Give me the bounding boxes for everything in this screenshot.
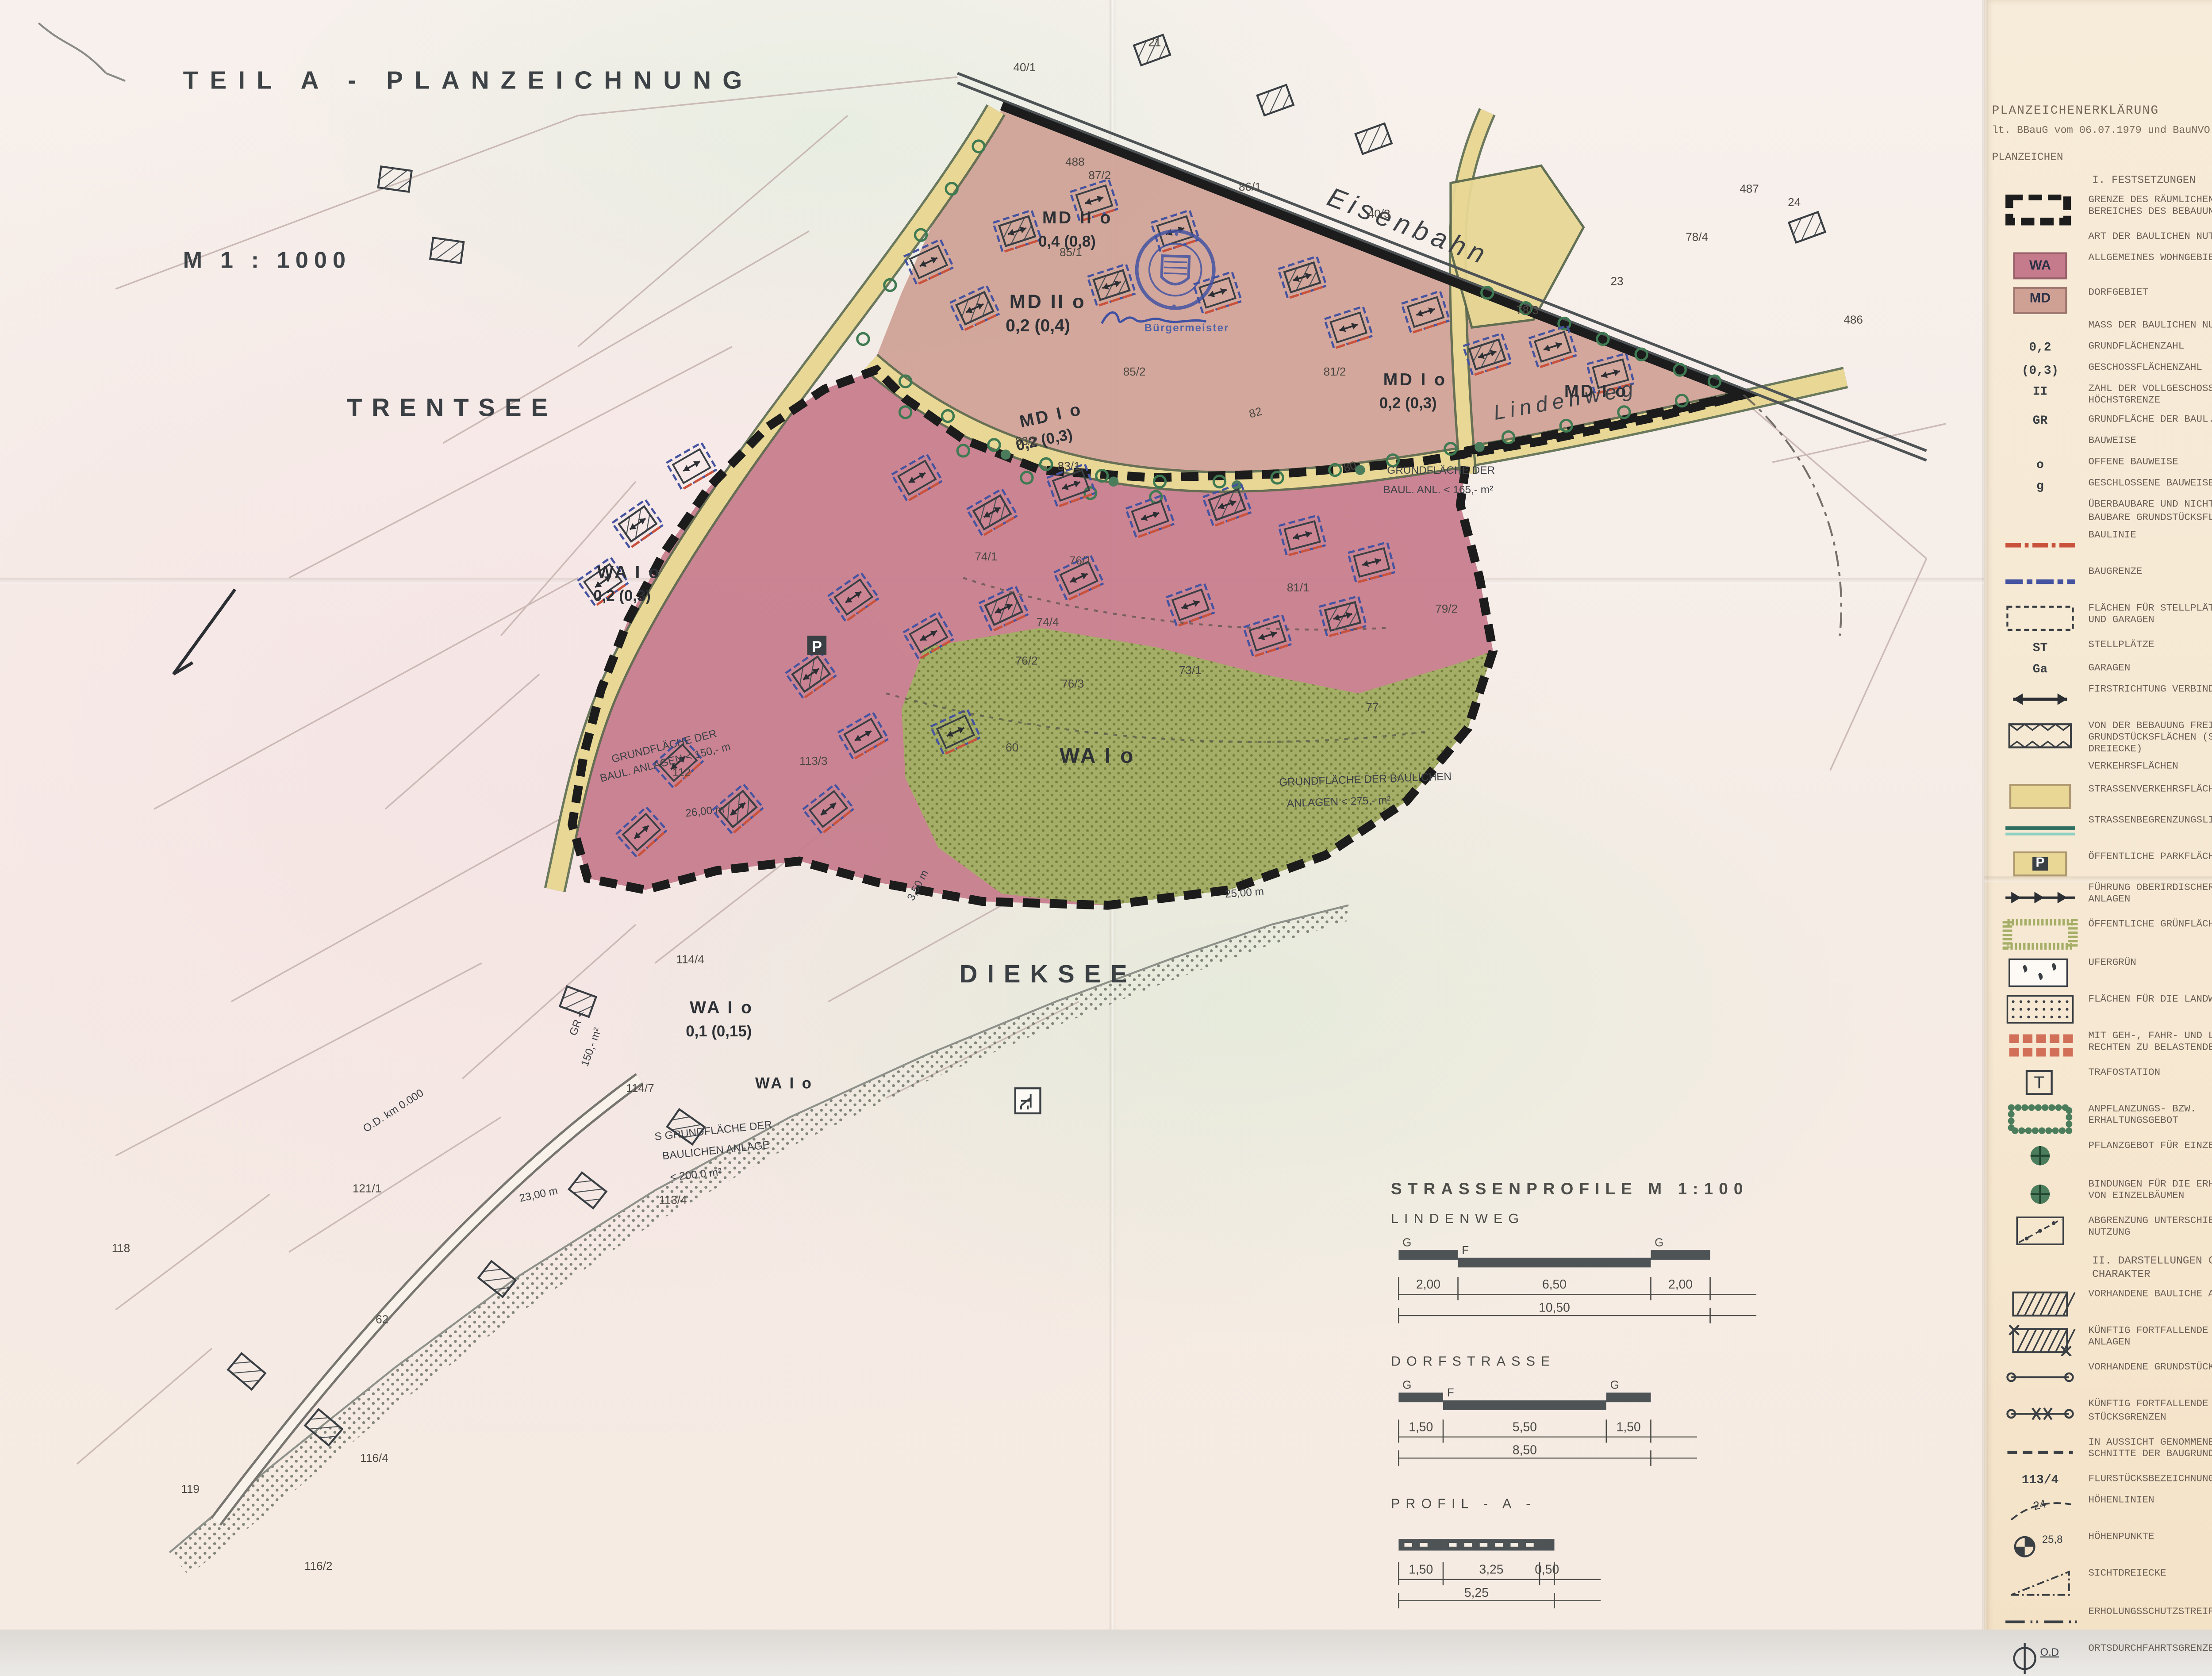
parcel-number: 79/2 — [1435, 602, 1458, 615]
svg-text:5,50: 5,50 — [1513, 1419, 1537, 1434]
legend-label: ÜBERBAUBARE UND NICHT ÜBER- BAUBARE GRUN… — [2088, 500, 2212, 523]
teil-a-title: TEIL A - PLANZEICHNUNG — [183, 65, 754, 94]
legend-label: GRUNDFLÄCHENZAHL — [2088, 341, 2212, 353]
einzelbaum-icon — [2001, 1178, 2078, 1209]
legend-row: ERHOLUNGSSCHUTZSTREIFENGEM. § 17 a LNG — [1992, 1606, 2212, 1637]
svg-text:2,00: 2,00 — [1668, 1277, 1693, 1291]
legend-row: VON DER BEBAUUNG FREIZUHALTENDE GRUNDSTÜ… — [1992, 720, 2212, 756]
map-annotation: O.D. km 0.000 — [361, 1087, 426, 1135]
parcel-number: 488 — [1065, 155, 1085, 168]
legend-row: STRASSENBEGRENZUNGSLINIE — [1992, 814, 2212, 845]
legend-label: DORFGEBIET — [2088, 286, 2212, 298]
legend-row: PÖFFENTLICHE PARKFLÄCHEN — [1992, 851, 2212, 877]
zone-label: WA I o — [690, 998, 753, 1017]
legend-row: BAUGRENZE§ 23 BauNVO — [1992, 566, 2212, 597]
map-annotation: 23,00 m — [518, 1185, 559, 1204]
legend-label: BAUWEISE — [2088, 435, 2212, 447]
parcel-number: 114/4 — [676, 952, 704, 966]
parking-icon: P — [2013, 851, 2067, 877]
legend-label: GRUNDFLÄCHE DER BAUL. ANLAGE — [2088, 414, 2212, 426]
legend-rows: I. FESTSETZUNGENGRENZE DES RÄUMLICHEN GE… — [1992, 173, 2212, 1673]
baulinie-icon — [2001, 529, 2078, 560]
map-annotation: GR < — [567, 1009, 587, 1037]
legend-row: SICHTDREIECKE — [1992, 1569, 2212, 1599]
parcel-number: 40/3 — [1368, 207, 1390, 220]
map-annotation: 150,- m² — [579, 1026, 603, 1068]
parcel-number: 118 — [112, 1241, 131, 1254]
legend-label: STRASSENBEGRENZUNGSLINIE — [2088, 814, 2212, 826]
building — [1356, 123, 1392, 154]
legend-label: SICHTDREIECKE — [2088, 1569, 2212, 1580]
parcel-number: 78/4 — [1686, 230, 1708, 243]
svg-text:G: G — [1402, 1235, 1411, 1249]
legend-label: GESCHLOSSENE BAUWEISE — [2088, 478, 2212, 490]
legend-row: VORHANDENE GRUNDSTÜCKSGRENZEN — [1992, 1362, 2212, 1393]
geh-fahr-leitungsrechte-icon — [2001, 1030, 2078, 1061]
parcel-number: 76/3 — [1061, 677, 1084, 690]
parcel-number: 40/1 — [1014, 61, 1036, 74]
map-annotation: 25,00 m — [1225, 886, 1264, 900]
versorgung-icon — [2001, 882, 2078, 913]
svg-text:1,50: 1,50 — [1409, 1562, 1433, 1576]
legend-label: UFERGRÜN — [2088, 956, 2212, 968]
profiles-body: LINDENWEG GFG2,00 6,50 2,00 10,50DORFSTR… — [1391, 1213, 1776, 1626]
svg-text:F: F — [1462, 1243, 1469, 1257]
legend-label: KÜNFTIG FORTFALLENDE GRUND- STÜCKSGRENZE… — [2088, 1399, 2212, 1423]
svg-text:G: G — [1402, 1378, 1411, 1392]
legend-label: HÖHENLINIEN — [2088, 1495, 2212, 1507]
legend-symbol-text: II — [2033, 385, 2047, 398]
baugrenze-icon — [2001, 566, 2078, 597]
legend-symbol-text: GR — [2033, 414, 2047, 428]
legend-row: GaGARAGEN — [1992, 662, 2212, 677]
parcel-number: 76/1 — [1069, 554, 1092, 567]
svg-text:2,00: 2,00 — [1416, 1277, 1440, 1291]
legend-symbol-text: o — [2036, 457, 2044, 471]
map-annotation: GRUNDFLÄCHE DER — [1387, 464, 1495, 476]
legend-row: gGESCHLOSSENE BAUWEISE§ 22 BauNVO — [1992, 478, 2212, 494]
legend-row: TTRAFOSTATION — [1992, 1067, 2212, 1098]
parcel-number: 487 — [1740, 182, 1759, 195]
parcel-number: 60 — [1006, 740, 1018, 754]
street-profiles: STRASSENPROFILE M 1:100 LINDENWEG GFG2,0… — [1391, 1179, 1776, 1626]
legend-label: FLÄCHEN FÜR DIE LANDWIRTSCHAFT — [2088, 993, 2212, 1005]
street-profile: PROFIL - A - 1,50 3,25 0,50 5,25 — [1391, 1499, 1776, 1626]
legend-row: MIT GEH-, FAHR- UND LEITUNGS- RECHTEN ZU… — [1992, 1030, 2212, 1061]
profile-name: LINDENWEG — [1391, 1213, 1776, 1227]
north-mark — [173, 590, 235, 675]
legend-row: FIRSTRICHTUNG VERBINDLICH — [1992, 683, 2212, 714]
legend-row: KÜNFTIG FORTFALLENDE BAULICHE ANLAGEN — [1992, 1325, 2212, 1356]
legend-symbol-text: 113/4 — [2022, 1474, 2059, 1487]
ufergruen-band — [169, 905, 1348, 1576]
map-annotation: BAUL. ANL. < 165,- m² — [1383, 484, 1494, 496]
zone-value: 0,2 (0,3) — [593, 587, 651, 605]
firstrichtung-icon — [2001, 683, 2078, 714]
legend-label: VORHANDENE BAULICHE ANLAGEN — [2088, 1289, 2212, 1300]
building — [378, 166, 412, 192]
legend-row: WAALLGEMEINES WOHNGEBIET§ 4 BauNVO — [1992, 253, 2212, 280]
legend-label: MIT GEH-, FAHR- UND LEITUNGS- RECHTEN ZU… — [2088, 1030, 2212, 1054]
stellplatz-area-icon — [2001, 603, 2078, 634]
parcel-number: 76/2 — [1015, 654, 1038, 667]
parcel-number: 85/1 — [1060, 245, 1082, 259]
legend-label: BAULINIE — [2088, 529, 2212, 541]
legend-row: O.DORTSDURCHFAHRTSGRENZE BEI km 0,000 — [1992, 1642, 2212, 1673]
legend-row: FLÄCHEN FÜR DIE LANDWIRTSCHAFT§ 9 Abs. 1… — [1992, 993, 2212, 1024]
legend-label: HÖHENPUNKTE — [2088, 1532, 2212, 1544]
svg-text:8,50: 8,50 — [1513, 1443, 1537, 1457]
zone-value: 0,2 (0,4) — [1006, 316, 1070, 335]
parcel-number: 121/1 — [353, 1181, 381, 1195]
profile-drawing: GFG1,50 5,50 1,50 8,50 — [1391, 1373, 1776, 1473]
legend-section-header: I. FESTSETZUNGEN — [2092, 173, 2212, 187]
legend-symbol-text: (0,3) — [2022, 363, 2059, 376]
parcel-number: 77 — [1366, 700, 1379, 713]
parcel-number: 86/1 — [1239, 180, 1261, 193]
legend-row: ART DER BAULICHEN NUTZUNG§ 9 Abs. 1 Nr. … — [1992, 231, 2212, 247]
legend-col-planzeichen: PLANZEICHEN — [1992, 150, 2063, 164]
legend-label: ALLGEMEINES WOHNGEBIET — [2088, 253, 2212, 265]
parcel-number: 24 — [1788, 196, 1801, 209]
legend-label: ERHOLUNGSSCHUTZSTREIFEN — [2088, 1606, 2212, 1618]
svg-text:O.D: O.D — [2040, 1646, 2059, 1658]
building — [1789, 212, 1825, 242]
zone-value: 0,1 (0,15) — [686, 1023, 752, 1040]
legend-label: GRENZE DES RÄUMLICHEN GELTUNGS- BEREICHE… — [2088, 195, 2212, 218]
plan-boundary-icon — [2001, 195, 2078, 226]
legend-label: VERKEHRSFLÄCHEN — [2088, 762, 2212, 774]
legend-label: KÜNFTIG FORTFALLENDE BAULICHE ANLAGEN — [2088, 1325, 2212, 1349]
svg-text:6,50: 6,50 — [1542, 1277, 1567, 1291]
legend-row: STSTELLPLÄTZE — [1992, 640, 2212, 656]
legend-row: BINDUNGEN FÜR DIE ERHALTUNG VON EINZELBÄ… — [1992, 1178, 2212, 1209]
legend-row: STRASSENVERKEHRSFLÄCHEN — [1992, 783, 2212, 809]
parcel-number: 74/1 — [975, 550, 997, 563]
building — [612, 500, 663, 548]
legend-label: VORHANDENE GRUNDSTÜCKSGRENZEN — [2088, 1362, 2212, 1374]
legend-label: FLURSTÜCKSBEZEICHNUNGEN — [2088, 1473, 2212, 1485]
abgrenzung-icon — [2001, 1215, 2078, 1246]
parcel-number: 83/2 — [1015, 434, 1038, 448]
legend-panel: PLANZEICHENERKLÄRUNG lt. BBauG vom 06.07… — [1992, 104, 2212, 1676]
ortsdurchfahrt-icon: O.D — [2001, 1642, 2078, 1673]
parcel-number: 73/1 — [1179, 663, 1202, 677]
svg-text:0,50: 0,50 — [1535, 1562, 1559, 1576]
hoehenpunkt-icon: 25,8 — [2001, 1532, 2078, 1563]
zone-label: MD I o — [1564, 382, 1628, 401]
hoehenlinie-icon: 24 — [2001, 1495, 2078, 1526]
svg-text:24: 24 — [2032, 1497, 2047, 1513]
legend-row: 0,2GRUNDFLÄCHENZAHL§§ 16 + 17 BauNVO — [1992, 341, 2212, 356]
legend-row: ÖFFENTLICHE GRÜNFLÄCHEN§ 9 Abs. 1 Nr. 15… — [1992, 920, 2212, 951]
legend-label: ÖFFENTLICHE PARKFLÄCHEN — [2088, 851, 2212, 863]
profile-drawing: 1,50 3,25 0,50 5,25 — [1391, 1516, 1776, 1616]
zone-label: MD II o — [1010, 291, 1086, 313]
legend-row: VORHANDENE BAULICHE ANLAGEN — [1992, 1289, 2212, 1319]
legend-row: MASS DER BAULICHEN NUTZUNG§ 9 Abs. 1 Nr.… — [1992, 319, 2212, 335]
road-area-icon — [2009, 783, 2071, 809]
parcel-number: 114/7 — [626, 1082, 654, 1095]
sichtflaeche-icon — [2001, 720, 2078, 751]
legend-label: ART DER BAULICHEN NUTZUNG — [2088, 231, 2212, 243]
svg-text:G: G — [1655, 1235, 1663, 1249]
legend-row: IIZAHL DER VOLLGESCHOSSE ALS HÖCHSTGRENZ… — [1992, 384, 2212, 407]
fortfallende-anlage-icon — [2001, 1325, 2078, 1356]
sichtdreieck-icon — [2001, 1569, 2078, 1599]
building — [1257, 85, 1294, 115]
parcel-number: 78/3 — [1516, 303, 1539, 317]
legend-row: VERKEHRSFLÄCHEN§ 9 Abs. 1 Nr. 11 BBauG — [1992, 762, 2212, 777]
legend-label: BINDUNGEN FÜR DIE ERHALTUNG VON EINZELBÄ… — [2088, 1178, 2212, 1202]
legend-row: ABGRENZUNG UNTERSCHIEDLICHER NUTZUNG§ 16… — [1992, 1215, 2212, 1246]
profile-drawing: GFG2,00 6,50 2,00 10,50 — [1391, 1231, 1776, 1331]
legend-row: ANPFLANZUNGS- BZW. ERHALTUNGSGEBOT§ 9 Ab… — [1992, 1104, 2212, 1135]
legend-label: FLÄCHEN FÜR STELLPLÄTZE UND GARAGEN — [2088, 603, 2212, 627]
legend-symbol-text: Ga — [2033, 663, 2047, 676]
landwirtschaft-icon — [2001, 993, 2078, 1024]
parcel-number: 113/3 — [799, 754, 827, 767]
legend-row: MDDORFGEBIET§ 5 BauNVO — [1992, 286, 2212, 313]
legend-row: GRENZE DES RÄUMLICHEN GELTUNGS- BEREICHE… — [1992, 195, 2212, 226]
lake-label: DIEKSEE — [960, 960, 1137, 988]
legend-row: oOFFENE BAUWEISE§ 22 BauNVO — [1992, 456, 2212, 472]
md-zone-icon: MD — [2013, 286, 2067, 313]
svg-text:3,25: 3,25 — [1479, 1562, 1503, 1576]
legend-label: GESCHOSSFLÄCHENZAHL — [2088, 362, 2212, 374]
zone-value: 0,2 (0,3) — [1379, 395, 1437, 412]
parcel-number: 119 — [181, 1482, 200, 1496]
fortfallende-grenze-icon — [2001, 1399, 2078, 1430]
parcel-number: 116/4 — [360, 1451, 388, 1465]
legend-row: (0,3)GESCHOSSFLÄCHENZAHL — [1992, 362, 2212, 378]
legend-row: KÜNFTIG FORTFALLENDE GRUND- STÜCKSGRENZE… — [1992, 1399, 2212, 1430]
legend-label: IN AUSSICHT GENOMMENE ZU- SCHNITTE DER B… — [2088, 1436, 2212, 1460]
legend-row: FLÄCHEN FÜR STELLPLÄTZE UND GARAGEN§ 9 A… — [1992, 603, 2212, 634]
map-scale: M 1 : 1000 — [183, 246, 351, 273]
parcel-number: 85/2 — [1123, 365, 1146, 378]
zone-label: WA I o — [755, 1074, 813, 1092]
legend-row: IN AUSSICHT GENOMMENE ZU- SCHNITTE DER B… — [1992, 1436, 2212, 1467]
wa-zone-icon: WA — [2013, 253, 2067, 280]
legend-section-header: II. DARSTELLUNGEN OHNE NORM- CHARAKTER — [2092, 1254, 2212, 1281]
legend-label: FIRSTRICHTUNG VERBINDLICH — [2088, 683, 2212, 695]
street-profile: LINDENWEG GFG2,00 6,50 2,00 10,50 — [1391, 1213, 1776, 1340]
legend-label: ÖFFENTLICHE GRÜNFLÄCHEN — [2088, 920, 2212, 932]
building — [228, 1354, 265, 1389]
parcel-number: 23 — [1610, 274, 1623, 288]
legend-row: ÜBERBAUBARE UND NICHT ÜBER- BAUBARE GRUN… — [1992, 500, 2212, 523]
legend-label: VON DER BEBAUUNG FREIZUHALTENDE GRUNDSTÜ… — [2088, 720, 2212, 756]
buergermeister-stamp-label: Bürgermeister — [1144, 324, 1229, 335]
lake-label: TRENTSEE — [347, 394, 557, 422]
svg-text:G: G — [1610, 1378, 1619, 1392]
grundstuecksgrenze-icon — [2001, 1362, 2078, 1393]
parcel-number: 486 — [1843, 313, 1863, 326]
parcel-number: 112 — [672, 766, 691, 779]
legend-row: 113/4FLURSTÜCKSBEZEICHNUNGEN — [1992, 1473, 2212, 1488]
parcel-number: 83/1 — [1058, 460, 1080, 473]
street-profile: DORFSTRASSE GFG1,50 5,50 1,50 8,50 — [1391, 1356, 1776, 1483]
gruenflaeche-icon — [2001, 920, 2078, 951]
svg-text:1,50: 1,50 — [1409, 1419, 1433, 1434]
ruheplatz-symbol — [1015, 1088, 1041, 1113]
parcel-number: 62 — [376, 1313, 388, 1326]
legend-label: PFLANZGEBOT FÜR EINZELBÄUME — [2088, 1141, 2212, 1153]
legend-row: 25,8HÖHENPUNKTE — [1992, 1532, 2212, 1563]
zone-label: MD I o — [1383, 370, 1447, 389]
parcel-number: 116/2 — [304, 1559, 332, 1572]
zone-label: WA I o — [597, 563, 661, 582]
profile-name: DORFSTRASSE — [1391, 1356, 1776, 1369]
legend-subtitle: lt. BBauG vom 06.07.1979 und BauNVO vom … — [1992, 125, 2212, 137]
einzelbaum-icon — [2001, 1141, 2078, 1172]
legend-row: 24HÖHENLINIEN — [1992, 1495, 2212, 1526]
legend-label: GARAGEN — [2088, 662, 2212, 674]
legend-row: UFERGRÜNRUHEPLATZ — [1992, 956, 2212, 987]
zone-label: MD II o — [1042, 208, 1113, 227]
trafostation-icon: T — [2001, 1067, 2078, 1098]
anpflanzungsgebot-icon — [2001, 1104, 2078, 1135]
legend-label: ORTSDURCHFAHRTSGRENZE BEI km 0,000 — [2088, 1642, 2212, 1654]
zuschnitt-icon — [2001, 1436, 2078, 1467]
building — [430, 238, 464, 263]
legend-row: FÜHRUNG OBERIRDISCHER VERSORGUNGS- ANLAG… — [1992, 882, 2212, 913]
vorhandene-anlage-icon — [2001, 1289, 2078, 1319]
parcel-number: 87/2 — [1088, 169, 1111, 182]
building — [666, 443, 717, 490]
svg-text:5,25: 5,25 — [1464, 1585, 1489, 1599]
parcel-number: 21 — [1148, 36, 1161, 49]
paper-sheet: PTRENTSEEDIEKSEEEisenbahnLindenwegMD II … — [0, 0, 2212, 1676]
building — [569, 1173, 606, 1208]
profiles-title: STRASSENPROFILE M 1:100 — [1391, 1179, 1776, 1198]
legend-label: MASS DER BAULICHEN NUTZUNG — [2088, 319, 2212, 331]
zone-label: WA I o — [1060, 744, 1135, 767]
legend-title: PLANZEICHENERKLÄRUNG — [1992, 104, 2212, 117]
profile-name: PROFIL - A - — [1391, 1499, 1776, 1512]
legend-label: ANPFLANZUNGS- BZW. ERHALTUNGSGEBOT — [2088, 1104, 2212, 1128]
legend-symbol-text: 0,2 — [2029, 342, 2051, 355]
legend-row: BAULINIE§ 23 BauNVO — [1992, 529, 2212, 560]
svg-text:P: P — [812, 638, 822, 656]
legend-label: ZAHL DER VOLLGESCHOSSE ALS HÖCHSTGRENZE — [2088, 384, 2212, 407]
legend-label: ABGRENZUNG UNTERSCHIEDLICHER NUTZUNG — [2088, 1215, 2212, 1239]
legend-label: TRAFOSTATION — [2088, 1067, 2212, 1079]
svg-text:T: T — [2034, 1074, 2044, 1093]
parcel-number: 74/4 — [1037, 615, 1059, 629]
legend-symbol-text: ST — [2033, 641, 2047, 655]
scanned-plan-sheet: PTRENTSEEDIEKSEEEisenbahnLindenwegMD II … — [0, 0, 2212, 1676]
legend-symbol-text: g — [2036, 479, 2044, 492]
legend-row: BAUWEISE§ 9 Abs. 1 Nr. 2 BBauG — [1992, 435, 2212, 451]
parcel-number: 113/4 — [659, 1193, 687, 1207]
legend-label: OFFENE BAUWEISE — [2088, 456, 2212, 468]
strassenbegrenzung-icon — [2001, 814, 2078, 845]
svg-text:25,8: 25,8 — [2042, 1534, 2063, 1546]
legend-row: GRGRUNDFLÄCHE DER BAUL. ANLAGE — [1992, 414, 2212, 429]
erholungsschutz-icon — [2001, 1606, 2078, 1637]
ufergruen-icon — [2001, 956, 2078, 987]
legend-label: STELLPLÄTZE — [2088, 640, 2212, 652]
svg-text:10,50: 10,50 — [1539, 1300, 1570, 1314]
legend-label: STRASSENVERKEHRSFLÄCHEN — [2088, 783, 2212, 795]
svg-text:F: F — [1447, 1386, 1454, 1399]
legend-label: FÜHRUNG OBERIRDISCHER VERSORGUNGS- ANLAG… — [2088, 882, 2212, 906]
legend-label: BAUGRENZE — [2088, 566, 2212, 578]
legend-row: PFLANZGEBOT FÜR EINZELBÄUME — [1992, 1141, 2212, 1172]
parcel-number: 81/2 — [1324, 365, 1346, 378]
svg-text:1,50: 1,50 — [1617, 1419, 1641, 1434]
parking-symbol: P — [807, 636, 827, 656]
parcel-number: 81/1 — [1287, 581, 1310, 594]
